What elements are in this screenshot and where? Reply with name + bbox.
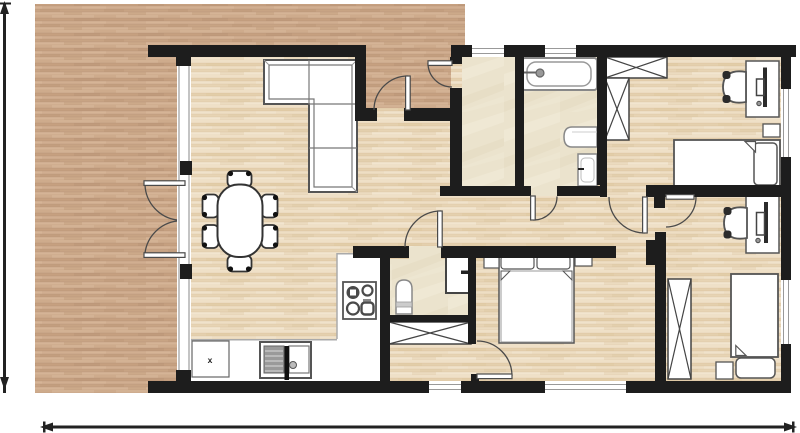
- svg-text:x: x: [208, 355, 213, 365]
